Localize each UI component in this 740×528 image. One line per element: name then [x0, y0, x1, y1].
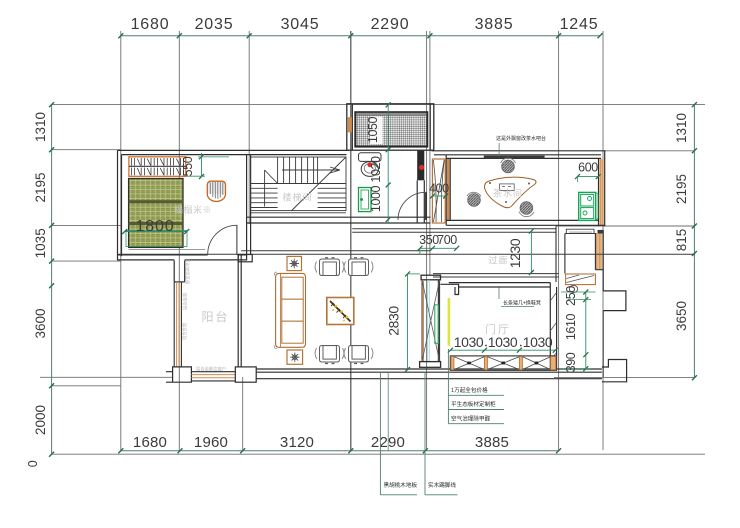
svg-text:卧室加高地台: 卧室加高地台	[184, 258, 191, 284]
svg-text:2290: 2290	[371, 16, 410, 33]
svg-text:700: 700	[437, 233, 457, 247]
svg-text:550: 550	[181, 156, 195, 176]
svg-text:1万起全包价格: 1万起全包价格	[451, 386, 488, 394]
svg-text:250: 250	[564, 286, 578, 306]
svg-text:1310: 1310	[33, 112, 48, 142]
svg-text:楼梯间: 楼梯间	[282, 192, 312, 203]
svg-text:黑胡桃木地板: 黑胡桃木地板	[384, 481, 418, 489]
svg-text:这是外飘窗改茶水吧台: 这是外飘窗改茶水吧台	[496, 135, 546, 142]
svg-text:400: 400	[429, 182, 449, 196]
svg-text:1960: 1960	[194, 434, 228, 451]
svg-text:3600: 3600	[33, 308, 48, 338]
svg-text:1230: 1230	[507, 238, 523, 268]
svg-text:1310: 1310	[674, 113, 689, 143]
svg-text:815: 815	[674, 229, 689, 252]
svg-text:2195: 2195	[33, 172, 48, 202]
svg-text:平生态板材定制柜: 平生态板材定制柜	[451, 400, 496, 408]
svg-text:3650: 3650	[674, 301, 689, 331]
svg-text:1000: 1000	[369, 185, 383, 212]
svg-text:390: 390	[564, 352, 578, 372]
svg-text:铝合金窗: 铝合金窗	[182, 293, 189, 310]
svg-text:茶水间: 茶水间	[493, 188, 523, 199]
svg-text:实木踢脚线: 实木踢脚线	[428, 481, 456, 489]
svg-text:2830: 2830	[386, 306, 402, 336]
svg-text:过廊: 过廊	[488, 255, 508, 266]
svg-text:2035: 2035	[195, 16, 234, 33]
svg-text:1030: 1030	[523, 334, 553, 350]
svg-text:3885: 3885	[475, 434, 509, 451]
svg-text:3045: 3045	[281, 16, 320, 33]
svg-text:3120: 3120	[280, 434, 314, 451]
svg-text:1680: 1680	[133, 434, 167, 451]
svg-text:铝合金推拉窗户: 铝合金推拉窗户	[196, 366, 226, 373]
svg-text:0: 0	[26, 460, 40, 467]
svg-text:3885: 3885	[475, 16, 514, 33]
svg-text:2000: 2000	[33, 405, 48, 435]
svg-text:门厅: 门厅	[485, 322, 511, 336]
svg-text:1030: 1030	[454, 334, 484, 350]
svg-text:榻榻米※: 榻榻米※	[174, 204, 212, 215]
svg-text:2195: 2195	[674, 174, 689, 204]
svg-text:1680: 1680	[131, 16, 170, 33]
svg-text:1245: 1245	[560, 16, 599, 33]
svg-text:600: 600	[578, 161, 598, 175]
svg-text:1035: 1035	[33, 228, 48, 258]
svg-text:1020: 1020	[369, 156, 383, 183]
svg-text:1800: 1800	[136, 218, 175, 235]
svg-text:1030: 1030	[488, 334, 518, 350]
svg-text:空气治理除甲醛: 空气治理除甲醛	[451, 415, 491, 423]
svg-text:阳台: 阳台	[201, 309, 229, 324]
svg-text:铝合金窗: 铝合金窗	[181, 323, 188, 340]
svg-text:长条矮几+换鞋凳: 长条矮几+换鞋凳	[503, 300, 541, 307]
svg-text:1050: 1050	[366, 116, 380, 143]
svg-text:1610: 1610	[564, 313, 578, 340]
